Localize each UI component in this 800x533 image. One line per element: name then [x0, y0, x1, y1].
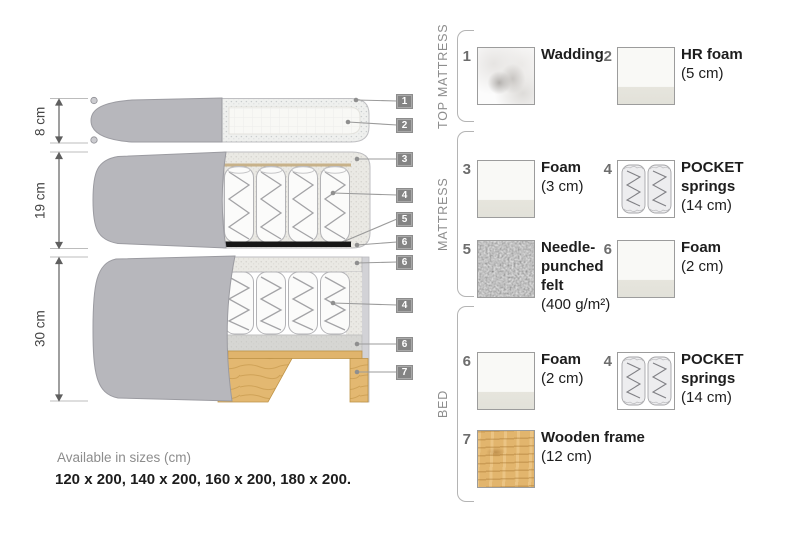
callout-2-hr-foam: 2 [397, 119, 412, 132]
swatch-felt [477, 240, 535, 298]
legend-item-size: (12 cm) [541, 447, 681, 466]
legend-item-name: POCKET springs [681, 350, 769, 388]
pocket-springs-graphic [618, 353, 674, 409]
callout-6-foam-bed: 6 [397, 256, 412, 269]
swatch-foam-2cm-bed [477, 352, 535, 410]
dimension-ticks [50, 99, 88, 402]
swatch-wooden-frame [477, 430, 535, 488]
legend-item-size: (2 cm) [541, 369, 621, 388]
legend-number-5: 5 [454, 241, 471, 258]
legend-number-7: 7 [454, 431, 471, 448]
legend-item-size: (14 cm) [681, 196, 769, 215]
bed-cross-section [93, 256, 369, 402]
legend-label-felt: Needle-punched felt (400 g/m²) [541, 238, 629, 314]
swatch-pocket-springs-bed [617, 352, 675, 410]
legend-number-1: 1 [454, 48, 471, 65]
callout-5-felt: 5 [397, 213, 412, 226]
pocket-springs-graphic [618, 161, 674, 217]
dimension-label-30cm: 30 cm [30, 257, 50, 401]
callout-7-wooden-frame: 7 [397, 366, 412, 379]
legend-number-6-bed: 6 [454, 353, 471, 370]
available-sizes-title: Available in sizes (cm) [57, 450, 191, 465]
top-mattress-cross-section [91, 97, 369, 143]
swatch-foam-3cm [477, 160, 535, 218]
callout-4-pocket-springs: 4 [397, 189, 412, 202]
legend-item-size: (2 cm) [681, 257, 766, 276]
dimension-arrows [56, 100, 62, 401]
legend-item-name: POCKET springs [681, 158, 769, 196]
swatch-wadding [477, 47, 535, 105]
section-bracket-bed [457, 306, 474, 502]
legend-number-4: 4 [595, 161, 612, 178]
legend-number-6: 6 [595, 241, 612, 258]
callout-1-wadding: 1 [397, 95, 412, 108]
section-bracket-top-mattress [457, 30, 474, 122]
legend-number-2: 2 [595, 48, 612, 65]
legend-item-size: (14 cm) [681, 388, 769, 407]
callout-6-foam-bed2: 6 [397, 338, 412, 351]
legend-label-pocket-springs: POCKET springs (14 cm) [681, 158, 769, 215]
legend-number-4-bed: 4 [595, 353, 612, 370]
swatch-pocket-springs [617, 160, 675, 218]
available-sizes-list: 120 x 200, 140 x 200, 160 x 200, 180 x 2… [55, 471, 351, 488]
callout-6-foam: 6 [397, 236, 412, 249]
swatch-hr-foam [617, 47, 675, 105]
dimension-label-8cm: 8 cm [30, 99, 50, 143]
mattress-cross-section [93, 152, 370, 248]
legend-label-hr-foam: HR foam (5 cm) [681, 45, 769, 83]
callout-3-foam: 3 [397, 153, 412, 166]
section-title-bed: BED [433, 306, 453, 502]
legend-item-size: (5 cm) [681, 64, 769, 83]
legend-label-foam-2cm: Foam (2 cm) [681, 238, 766, 276]
swatch-foam-2cm [617, 240, 675, 298]
legend-item-name: HR foam [681, 45, 769, 64]
legend-item-size: (3 cm) [541, 177, 621, 196]
legend-item-name: Needle-punched felt [541, 238, 629, 295]
legend-item-size: (400 g/m²) [541, 295, 629, 314]
callout-4-springs-bed: 4 [397, 299, 412, 312]
section-title-top-mattress: TOP MATTRESS [433, 30, 453, 122]
legend-item-name: Wooden frame [541, 428, 681, 447]
legend-item-name: Foam [681, 238, 766, 257]
legend-label-wooden-frame: Wooden frame (12 cm) [541, 428, 681, 466]
legend-number-3: 3 [454, 161, 471, 178]
section-bracket-mattress [457, 131, 474, 297]
section-title-mattress: MATTRESS [433, 131, 453, 297]
dimension-label-19cm: 19 cm [30, 152, 50, 249]
felt-texture-graphic [478, 241, 534, 297]
bed-construction-infographic: 8 cm 19 cm 30 cm 1 2 3 4 5 6 6 4 6 7 TOP… [0, 0, 800, 533]
legend-label-pocket-springs-bed: POCKET springs (14 cm) [681, 350, 769, 407]
